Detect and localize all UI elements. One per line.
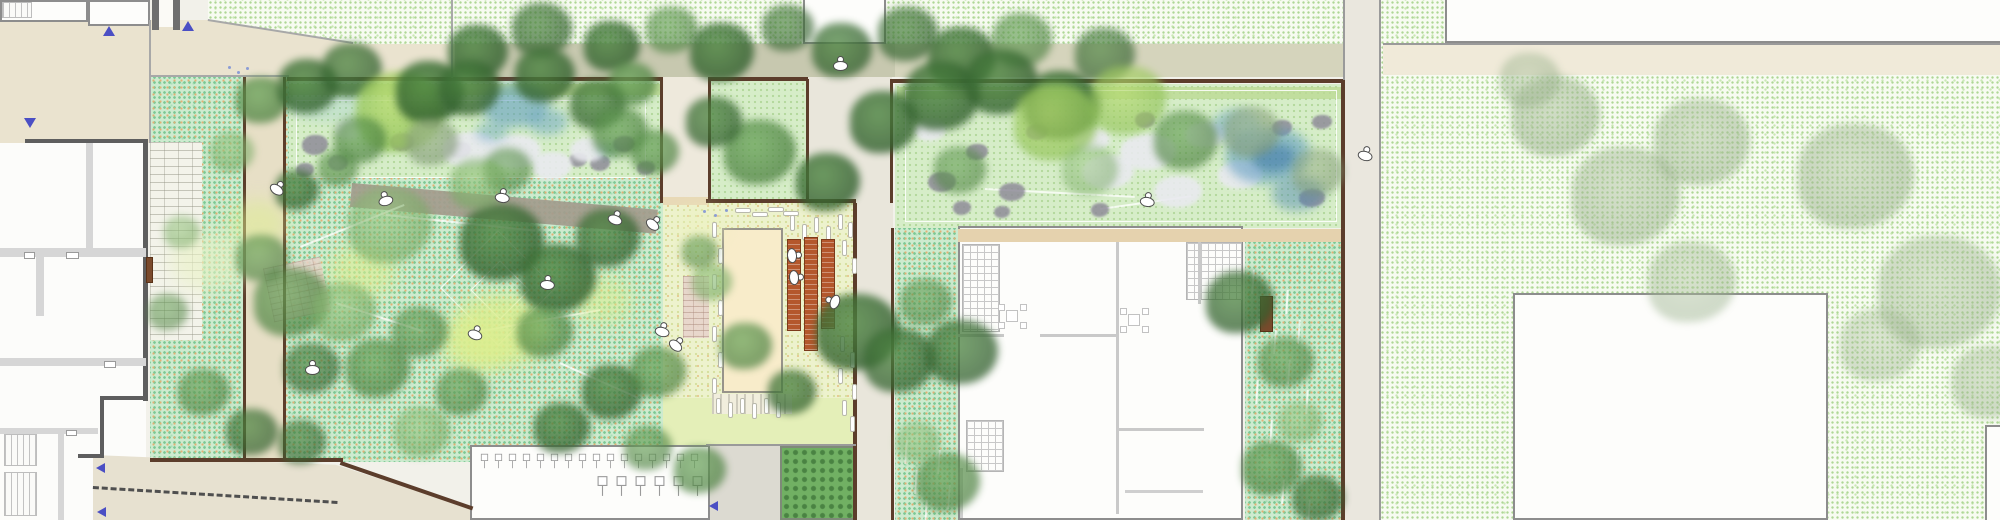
person-symbol: [833, 56, 848, 73]
plant-slat: [783, 211, 799, 216]
building-top-b: [88, 0, 150, 26]
furniture-symbol: [1120, 308, 1147, 331]
interior-wall: [1125, 490, 1203, 493]
plant-symbol: [617, 476, 627, 496]
stair-hatch-b: [4, 472, 37, 516]
door-symbol: [66, 430, 77, 436]
building-top-right: [1445, 0, 2000, 43]
paint-speck: [714, 214, 717, 217]
tree-canopy: [1952, 346, 2000, 418]
plant-symbol: [607, 454, 614, 468]
garden-wall: [1341, 80, 1345, 520]
plant-slat: [752, 403, 757, 419]
entrance-arrow-down: [24, 118, 36, 128]
plant-symbol: [551, 454, 558, 468]
tree-canopy: [608, 62, 656, 105]
plant-slat: [838, 368, 843, 384]
building-far-right: [1513, 293, 1828, 520]
plant-slat: [718, 300, 723, 316]
plant-slat: [752, 212, 768, 217]
bench: [146, 257, 153, 283]
concrete-edge: [706, 444, 856, 446]
interior-wall: [1198, 242, 1201, 304]
plant-symbol: [593, 454, 600, 468]
person-symbol: [786, 269, 804, 285]
terrace-grid-west: [962, 244, 1000, 332]
furniture-symbol: [998, 304, 1025, 327]
interior-wall: [1040, 334, 1118, 337]
interior-wall: [36, 248, 44, 316]
street-left-lower: [0, 70, 150, 143]
plant-slat: [842, 240, 847, 256]
plant-slat: [712, 222, 717, 238]
interior-wall: [0, 358, 146, 366]
tan-threshold: [663, 197, 708, 205]
plant-symbol: [636, 476, 646, 496]
plant-slat: [716, 398, 721, 414]
patio-terrace: [722, 228, 783, 393]
plant-symbol: [579, 454, 586, 468]
plant-slat: [712, 326, 717, 342]
plant-slat: [842, 400, 847, 416]
stair-hatch-a: [4, 434, 37, 466]
plant-symbol: [509, 454, 516, 468]
plant-slat: [718, 248, 723, 264]
plant-symbol: [481, 454, 488, 468]
person-symbol: [305, 360, 320, 377]
tree-canopy: [1292, 475, 1344, 520]
plant-slat: [712, 378, 717, 394]
person-symbol: [784, 247, 802, 263]
path-edge: [1379, 0, 1381, 520]
wall-stub-b: [173, 0, 180, 30]
entrance-arrow-up: [182, 21, 194, 31]
plant-slat: [838, 214, 843, 230]
street-edge: [149, 20, 151, 143]
interior-wall: [0, 428, 98, 434]
tree-canopy: [631, 130, 679, 173]
person-symbol: [539, 274, 555, 292]
paint-speck: [228, 66, 231, 69]
hedge-block: [780, 446, 856, 520]
person-symbol: [1139, 191, 1157, 210]
plant-slat: [850, 416, 855, 432]
plant-slat: [814, 217, 819, 233]
plant-slat: [768, 207, 784, 212]
plant-slat: [735, 208, 751, 213]
plant-slat: [728, 402, 733, 418]
wall-gap: [159, 0, 173, 27]
entrance-arrow-up: [103, 26, 115, 36]
right-pedestrian-path: [1345, 0, 1381, 520]
person-symbol: [494, 187, 512, 206]
entrance-arrow-left: [96, 463, 105, 473]
plant-symbol: [537, 454, 544, 468]
building-corner-se: [1985, 425, 2000, 520]
plant-slat: [790, 215, 795, 231]
plant-symbol: [495, 454, 502, 468]
plant-symbol: [565, 454, 572, 468]
roof-hatch: [2, 2, 32, 18]
paint-speck: [703, 210, 706, 213]
tree-canopy: [278, 420, 326, 463]
plant-symbol: [523, 454, 530, 468]
site-boundary: [100, 396, 104, 458]
tree-canopy: [624, 426, 672, 469]
building-tan-band: [958, 229, 1343, 242]
entrance-arrow-left: [709, 501, 718, 511]
interior-wall: [86, 143, 93, 250]
plant-slat: [740, 398, 745, 414]
paint-speck: [237, 71, 240, 74]
plant-slat: [852, 384, 857, 400]
plant-symbol: [598, 476, 608, 496]
tree-canopy: [768, 370, 816, 413]
street-edge: [1383, 43, 2000, 45]
plant-slat: [848, 222, 853, 238]
site-boundary: [78, 454, 104, 458]
interior-wall: [1116, 428, 1204, 431]
door-symbol: [24, 252, 35, 259]
door-symbol: [66, 252, 79, 259]
entrance-arrow-left: [97, 507, 106, 517]
paint-speck: [725, 209, 728, 212]
paint-speck: [246, 67, 249, 70]
plant-slat: [852, 258, 857, 274]
plant-symbol: [655, 476, 665, 496]
interior-wall: [58, 434, 64, 520]
path-edge: [1343, 0, 1345, 80]
street-right: [1383, 44, 2000, 75]
site-boundary: [100, 396, 146, 400]
interior-wall: [1116, 242, 1119, 514]
door-symbol: [104, 361, 116, 368]
landscape-site-plan: [0, 0, 2000, 520]
wall-stub-a: [152, 0, 159, 30]
